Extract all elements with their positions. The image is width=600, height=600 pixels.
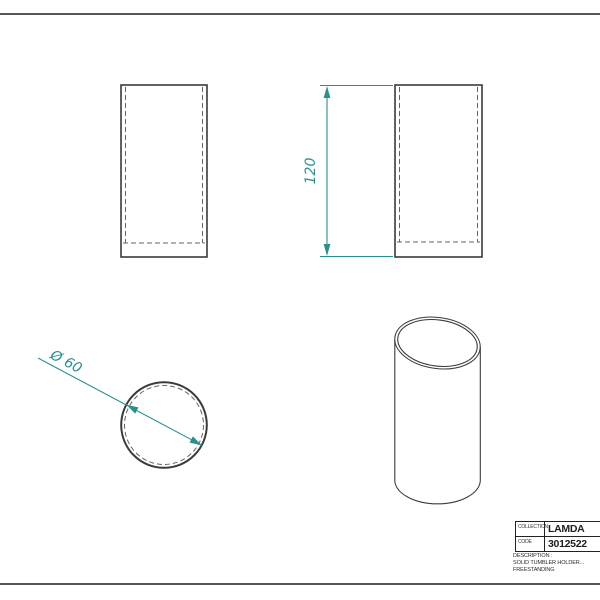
description-line1: SOLID TUMBLER HOLDER...	[513, 560, 600, 567]
diameter-dimension-line	[38, 358, 202, 445]
title-block: COLLECTION LAMDA CODE 3012522	[515, 521, 600, 552]
description-label: DESCRIPTION :	[513, 553, 600, 560]
cylinder-rim-outer	[391, 312, 483, 374]
arrow-up-icon	[324, 86, 331, 98]
collection-value: LAMDA	[545, 522, 600, 536]
description-line2: FREESTANDING	[513, 567, 600, 574]
front-view	[121, 85, 207, 257]
code-value: 3012522	[545, 537, 600, 552]
collection-label: COLLECTION	[516, 522, 545, 536]
drawing-canvas: 120 Ø 60	[0, 0, 600, 600]
height-dimension: 120	[303, 86, 393, 257]
title-block-row-collection: COLLECTION LAMDA	[516, 522, 600, 537]
diameter-dimension: Ø 60	[38, 347, 202, 446]
cylinder-rim-inner	[395, 315, 481, 372]
side-view	[395, 85, 482, 257]
side-view-outline	[395, 85, 482, 257]
cylinder-bottom	[395, 481, 481, 504]
front-view-outline	[121, 85, 207, 257]
title-block-description: DESCRIPTION : SOLID TUMBLER HOLDER... FR…	[513, 553, 600, 574]
drawing-sheet: { "colors": { "dimension": "#2a8f90", "d…	[0, 0, 600, 600]
height-dimension-label: 120	[303, 158, 319, 185]
arrow-down-icon	[324, 244, 331, 256]
title-block-row-code: CODE 3012522	[516, 537, 600, 552]
perspective-view	[391, 312, 483, 504]
code-label: CODE	[516, 537, 545, 552]
